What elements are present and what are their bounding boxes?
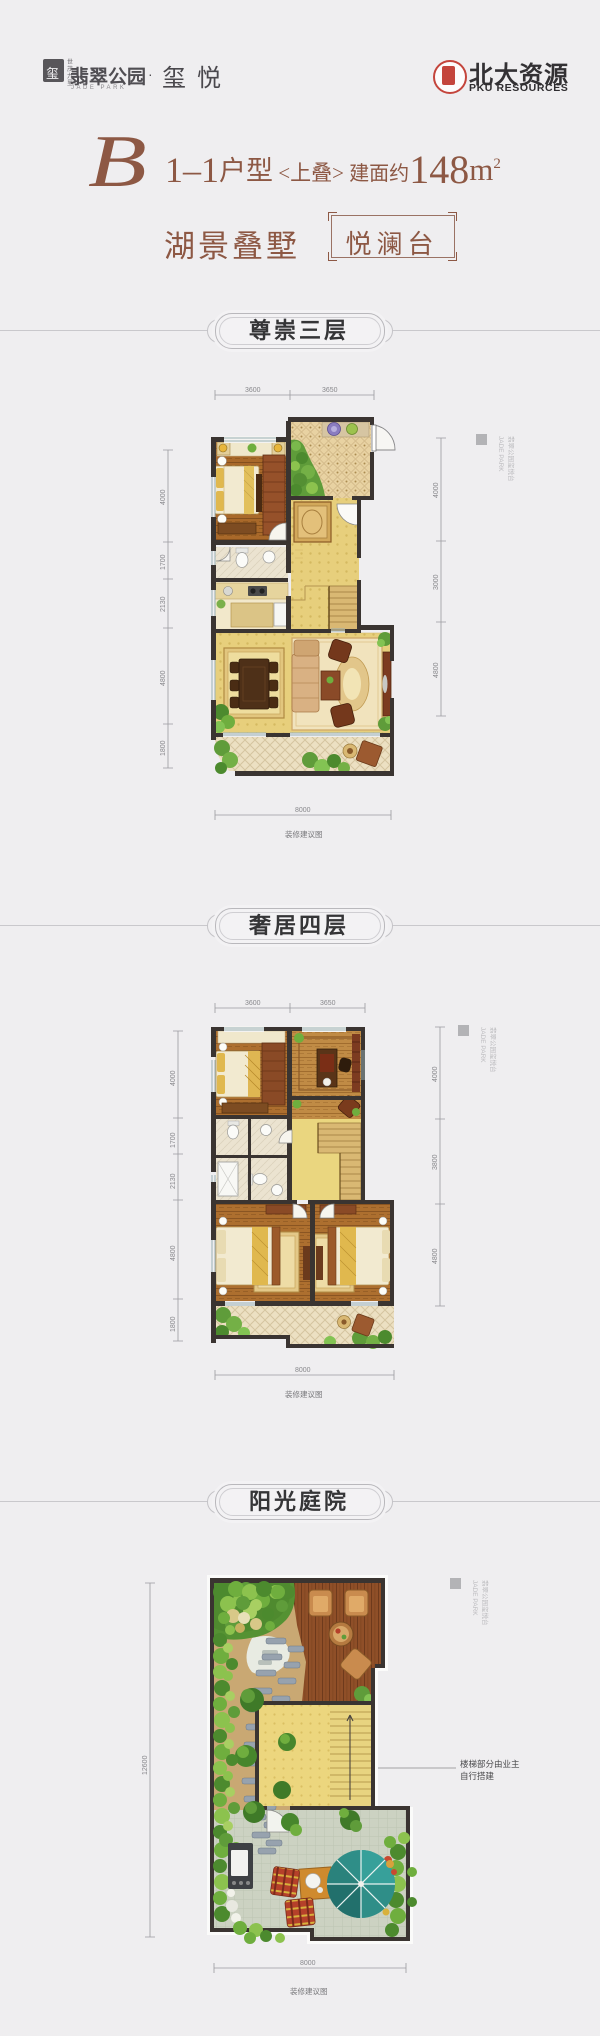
svg-text:JADE PARK: JADE PARK (479, 1027, 486, 1063)
svg-text:翡翠公园玺悦台: 翡翠公园玺悦台 (489, 1027, 498, 1073)
svg-text:翡翠公园玺悦台: 翡翠公园玺悦台 (481, 1580, 490, 1626)
svg-text:8000: 8000 (295, 1367, 311, 1374)
svg-text:4000: 4000 (160, 489, 167, 505)
svg-text:3800: 3800 (432, 1154, 439, 1170)
svg-text:1800: 1800 (170, 1316, 177, 1332)
svg-text:1700: 1700 (170, 1132, 177, 1148)
svg-text:翡翠公园玺悦台: 翡翠公园玺悦台 (507, 436, 516, 482)
svg-text:4800: 4800 (432, 1248, 439, 1264)
svg-text:3600: 3600 (245, 387, 261, 394)
svg-text:自行搭建: 自行搭建 (460, 1771, 495, 1781)
svg-text:3000: 3000 (433, 574, 440, 590)
svg-text:8000: 8000 (295, 807, 311, 814)
svg-text:装修建议图: 装修建议图 (290, 1986, 328, 1996)
svg-text:8000: 8000 (300, 1960, 316, 1967)
svg-text:4800: 4800 (170, 1245, 177, 1261)
svg-text:4000: 4000 (433, 482, 440, 498)
svg-text:4000: 4000 (170, 1070, 177, 1086)
svg-text:JADE PARK: JADE PARK (497, 436, 504, 472)
svg-text:2130: 2130 (160, 596, 167, 612)
svg-text:4000: 4000 (432, 1066, 439, 1082)
svg-text:4800: 4800 (160, 670, 167, 686)
svg-text:1700: 1700 (160, 554, 167, 570)
svg-text:装修建议图: 装修建议图 (285, 1389, 323, 1399)
svg-text:JADE PARK: JADE PARK (471, 1580, 478, 1616)
svg-text:3600: 3600 (245, 1000, 261, 1007)
svg-text:3650: 3650 (322, 387, 338, 394)
svg-text:1800: 1800 (160, 740, 167, 756)
svg-text:12600: 12600 (142, 1755, 149, 1775)
svg-text:2130: 2130 (170, 1173, 177, 1189)
svg-text:3650: 3650 (320, 1000, 336, 1007)
svg-text:楼梯部分由业主: 楼梯部分由业主 (460, 1759, 520, 1769)
svg-text:4800: 4800 (433, 662, 440, 678)
svg-text:装修建议图: 装修建议图 (285, 829, 323, 839)
